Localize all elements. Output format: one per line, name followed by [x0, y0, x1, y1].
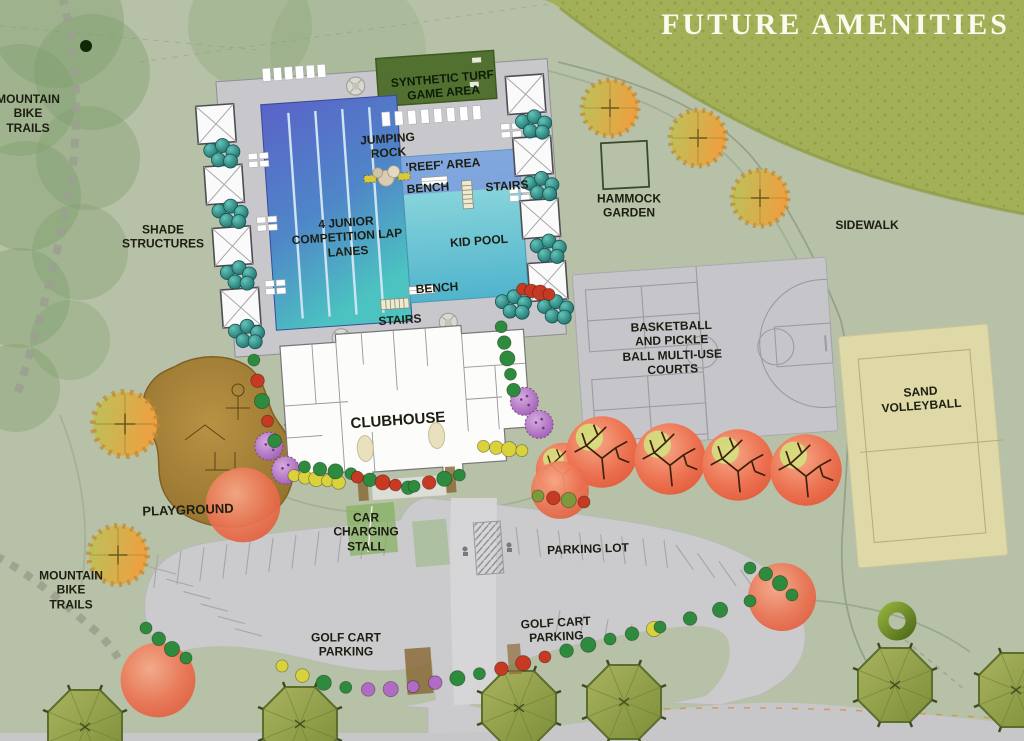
tree-dot: [80, 40, 92, 52]
bench: [409, 285, 435, 295]
shrub: [140, 622, 152, 634]
sand-volleyball-court: [838, 323, 1014, 568]
lounge-chair: [262, 68, 271, 82]
lounge-chair: [317, 64, 326, 78]
lounge-chair: [420, 109, 429, 124]
shrub: [473, 668, 485, 680]
shrub: [389, 479, 402, 492]
shrub: [383, 682, 398, 697]
shrub: [532, 490, 544, 502]
lounge-chair: [510, 195, 519, 202]
lounge-chair: [306, 65, 315, 79]
lounge-chair: [446, 107, 455, 122]
shrub: [180, 652, 192, 664]
lounge-chair: [257, 225, 266, 232]
shrub: [547, 491, 561, 505]
shrub: [683, 612, 697, 626]
shrub: [504, 368, 517, 381]
shrub: [543, 288, 556, 301]
shrub: [296, 669, 310, 683]
shrub: [786, 589, 798, 601]
lounge-chair: [268, 224, 277, 231]
shrub: [351, 471, 364, 484]
site-plan: FUTURE AMENITIES MOUNTAIN BIKE TRAILS SH…: [0, 0, 1024, 741]
lounge-chair: [509, 187, 518, 194]
lounge-chair: [273, 67, 282, 81]
shrub: [276, 660, 288, 672]
shrub: [744, 562, 756, 574]
lounge-chair: [512, 131, 521, 138]
shrub: [578, 496, 590, 508]
bench: [421, 176, 447, 186]
hammock-garden-square: [601, 141, 649, 189]
shrub: [625, 627, 639, 641]
shrub: [581, 637, 596, 652]
shrub: [497, 335, 512, 350]
shrub: [506, 383, 521, 398]
shrub: [744, 595, 756, 607]
shrub: [450, 671, 465, 686]
shrub: [250, 373, 265, 388]
lounge-chair: [407, 110, 416, 125]
shrub: [313, 462, 328, 477]
shrub: [247, 354, 260, 367]
shrub: [759, 567, 773, 581]
lounge-chair: [459, 106, 468, 121]
shrub: [712, 602, 727, 617]
shrub: [422, 475, 437, 490]
lounge-chair: [259, 152, 268, 159]
lounge-chair: [295, 66, 304, 80]
lounge-chair: [472, 105, 481, 120]
lounge-chair: [268, 216, 277, 223]
lounge-chair: [501, 131, 510, 138]
shrub: [316, 675, 331, 690]
shrub: [298, 460, 311, 473]
lounge-chair: [248, 153, 257, 160]
site-plan-graphics: [0, 0, 1024, 741]
shrub: [477, 440, 490, 453]
stairs: [381, 298, 410, 310]
lounge-chair: [277, 287, 286, 294]
lounge-chair: [433, 108, 442, 123]
shrub: [407, 681, 419, 693]
lounge-chair: [501, 123, 510, 130]
lap-pool: [261, 95, 412, 330]
lounge-chair: [394, 111, 403, 126]
lounge-chair: [257, 217, 266, 224]
shrub: [604, 633, 616, 645]
shrub: [267, 434, 282, 449]
shrub: [515, 444, 528, 457]
shrub: [361, 683, 375, 697]
shrub: [654, 621, 666, 633]
lounge-chair: [284, 66, 293, 80]
lounge-chair: [249, 161, 258, 168]
shrub: [495, 320, 508, 333]
shrub: [261, 415, 274, 428]
page-title: FUTURE AMENITIES: [661, 8, 1010, 42]
ring-tree: [883, 607, 911, 635]
shrub: [340, 681, 352, 693]
shrub: [152, 632, 166, 646]
shrub: [408, 480, 421, 493]
stairs: [461, 180, 473, 209]
shrub: [772, 576, 787, 591]
lounge-chair: [265, 280, 274, 287]
shrub: [363, 473, 378, 488]
lounge-chair: [266, 288, 275, 295]
shrub: [561, 492, 576, 507]
shrub: [495, 662, 509, 676]
shrub: [453, 469, 466, 482]
lounge-chair: [382, 112, 391, 127]
shrub: [516, 655, 531, 670]
lounge-chair: [260, 160, 269, 167]
shrub: [539, 651, 551, 663]
shrub: [428, 676, 442, 690]
shrub: [560, 644, 574, 658]
lounge-chair: [276, 280, 285, 287]
shrub: [164, 641, 179, 656]
